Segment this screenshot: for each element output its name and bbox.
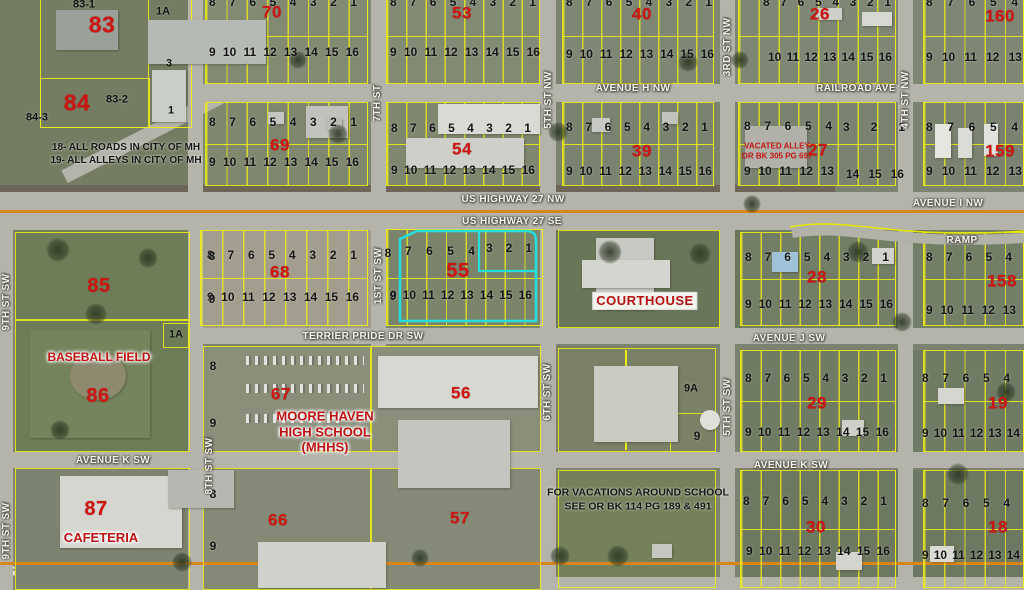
lot-number: 13 xyxy=(284,45,297,59)
lot-row: 87654321 xyxy=(743,494,887,508)
lot-number: 7 xyxy=(585,120,592,134)
lot-number: 16 xyxy=(522,163,535,177)
lot-number: 3 xyxy=(665,0,672,9)
lot-row: 910111213 xyxy=(744,164,834,178)
block-number-70: 70 xyxy=(262,4,282,21)
lot-number: 16 xyxy=(877,544,890,558)
lot-number: 12 xyxy=(262,290,275,304)
street-label: RAMP xyxy=(946,236,977,246)
lot-number: 13 xyxy=(1003,303,1016,317)
lot-number: 10 xyxy=(768,50,781,64)
lot-row: 910111213141516 xyxy=(745,297,893,311)
lot-number: 8 xyxy=(566,0,573,9)
lot-number: 2 xyxy=(861,494,868,508)
lot-number: 7 xyxy=(410,0,417,9)
lot-number: 15 xyxy=(868,167,881,181)
lot-number: 10 xyxy=(221,290,234,304)
lot-number: 8 xyxy=(566,120,573,134)
lot-number: 10 xyxy=(758,164,771,178)
lot-number: 3 xyxy=(842,371,849,385)
lot-number: 13 xyxy=(460,288,473,302)
block-number-85: 85 xyxy=(87,276,110,296)
street-label: 1ST ST SW xyxy=(374,248,384,304)
lot-number: 11 xyxy=(787,50,800,64)
block-number-55: 55 xyxy=(446,261,469,281)
block-number-57: 57 xyxy=(450,510,470,527)
lot-number: 11 xyxy=(779,544,792,558)
lot-row: 910111213141516 xyxy=(391,163,535,177)
lot-number: 8 xyxy=(926,0,933,9)
note-line: 19- ALL ALLEYS IN CITY OF MH xyxy=(50,154,201,167)
lot-number: 4 xyxy=(643,120,650,134)
lot-row: 910111213141516 xyxy=(390,288,532,302)
lot-row: 7654 xyxy=(405,244,475,258)
tree xyxy=(947,463,969,485)
block-number-158: 158 xyxy=(987,273,1017,290)
block-number-26: 26 xyxy=(810,6,830,23)
lot-number: 14 xyxy=(485,45,498,59)
tree xyxy=(50,420,70,440)
lot-number: 16 xyxy=(527,45,540,59)
lot-number: 8 xyxy=(743,494,750,508)
lot-number: 8 xyxy=(385,247,392,259)
lot-number: 3 xyxy=(843,120,850,134)
lot-number: 7 xyxy=(765,250,772,264)
lot-row: 87654 xyxy=(922,496,1010,510)
block-number-67: 67 xyxy=(271,386,291,403)
block-number-69: 69 xyxy=(270,137,290,154)
lot-number: 9 xyxy=(210,540,217,552)
tree xyxy=(892,312,912,332)
street-label: 7TH ST xyxy=(373,85,383,122)
lot-number: 13 xyxy=(1009,164,1022,178)
block-number-66: 66 xyxy=(268,512,288,529)
lot-number: 16 xyxy=(519,288,532,302)
lot-number: 5 xyxy=(448,121,455,135)
lot-row: 10111213141516 xyxy=(768,50,892,64)
block-number-53: 53 xyxy=(452,5,472,22)
lot-number: 14 xyxy=(480,288,493,302)
parcel-label-83-2: 83-2 xyxy=(106,95,128,106)
lot-number: 6 xyxy=(969,120,976,134)
street-label: 3RD ST NW xyxy=(723,18,733,77)
lot-number: 15 xyxy=(502,163,515,177)
lot-number: 12 xyxy=(970,548,983,562)
lot-number: 4 xyxy=(821,494,828,508)
lot-number: 7 xyxy=(942,371,949,385)
lot-number: 12 xyxy=(444,45,457,59)
lot-number: 4 xyxy=(467,121,474,135)
block-number-30: 30 xyxy=(806,519,826,536)
lot-number: 9 xyxy=(926,303,933,317)
lot-number: 15 xyxy=(325,45,338,59)
lot-row: 910111213141516 xyxy=(390,45,540,59)
tree xyxy=(743,195,761,213)
lot-number: 2 xyxy=(330,248,337,262)
lot-number: 9 xyxy=(745,297,752,311)
lot-number: 14 xyxy=(304,155,317,169)
lot-number: 6 xyxy=(249,0,256,9)
lot-number: 10 xyxy=(759,544,772,558)
block-number-18: 18 xyxy=(988,519,1008,536)
lot-number: 14 xyxy=(1007,548,1020,562)
lot-number: 13 xyxy=(816,425,829,439)
lot-row: 87654321 xyxy=(207,248,357,262)
lot-number: 2 xyxy=(505,121,512,135)
lot-number: 7 xyxy=(764,371,771,385)
lot-number: 7 xyxy=(764,119,771,133)
building xyxy=(398,420,510,488)
parcel-label-1A: 1A xyxy=(169,330,183,341)
lot-number: 7 xyxy=(586,0,593,9)
lot-number: 11 xyxy=(961,303,974,317)
courthouse-label: COURTHOUSE xyxy=(592,292,697,310)
lot-number: 8 xyxy=(209,0,216,9)
lot-number: 9 xyxy=(390,290,397,302)
lot-number: 16 xyxy=(346,155,359,169)
lot-row: 321 xyxy=(843,120,905,134)
lot-number: 13 xyxy=(817,544,830,558)
lot-row: 87654 xyxy=(926,250,1012,264)
lot-number: 2 xyxy=(867,0,874,9)
baseball-field-label: BASEBALL FIELD xyxy=(47,350,150,364)
street-label: AVENUE K SW xyxy=(754,461,828,471)
block-number-28: 28 xyxy=(807,269,827,286)
lot-number: 1 xyxy=(880,494,887,508)
lot-number: 2 xyxy=(863,250,870,264)
lot-number: 11 xyxy=(952,548,965,562)
note-line: VACATED ALLEY xyxy=(742,142,813,152)
lot-row: 910111213 xyxy=(926,303,1016,317)
lot-number: 13 xyxy=(284,155,297,169)
lot-number: 10 xyxy=(579,164,592,178)
parcel-label-83-1: 83-1 xyxy=(73,0,95,11)
lot-number: 2 xyxy=(509,0,516,9)
lot-number: 4 xyxy=(1003,371,1010,385)
lot-number: 14 xyxy=(846,167,859,181)
lot-number: 8 xyxy=(926,120,933,134)
lot-number: 6 xyxy=(249,115,256,129)
lot-number: 6 xyxy=(963,371,970,385)
lot-row: 87654321 xyxy=(209,115,357,129)
parcel-label-9A: 9A xyxy=(684,384,698,395)
lot-number: 12 xyxy=(799,297,812,311)
lot-number: 8 xyxy=(391,121,398,135)
lot-number: 16 xyxy=(880,297,893,311)
alley-line xyxy=(387,36,539,37)
street-label: AVENUE I NW xyxy=(913,199,983,209)
alley-line xyxy=(924,36,1023,37)
lot-number: 13 xyxy=(283,290,296,304)
lot-row: 910111213 xyxy=(926,164,1022,178)
lot-number: 9 xyxy=(694,430,701,442)
lot-number: 1 xyxy=(350,115,357,129)
lot-number: 9 xyxy=(566,47,573,61)
lot-number: 14 xyxy=(837,544,850,558)
lot-number: 6 xyxy=(784,250,791,264)
lot-number: 8 xyxy=(763,0,770,9)
lot-number: 16 xyxy=(891,167,904,181)
vacated-alley-note: VACATED ALLEYOR BK 305 PG 697 xyxy=(742,142,813,163)
parking-cars xyxy=(246,356,364,365)
lot-number: 15 xyxy=(860,50,873,64)
lot-number: 12 xyxy=(970,426,983,440)
lot-number: 13 xyxy=(640,47,653,61)
lot-number: 13 xyxy=(465,45,478,59)
lot-number: 9 xyxy=(922,548,929,562)
lot-number: 12 xyxy=(619,164,632,178)
lot-number: 6 xyxy=(963,496,970,510)
lot-number: 6 xyxy=(429,121,436,135)
lot-number: 7 xyxy=(405,244,412,258)
lot-number: 16 xyxy=(699,164,712,178)
lot-number: 2 xyxy=(861,371,868,385)
lot-number: 10 xyxy=(403,288,416,302)
lot-number: 11 xyxy=(243,155,256,169)
lot-number: 13 xyxy=(821,164,834,178)
lot-number: 12 xyxy=(263,45,276,59)
lot-number: 16 xyxy=(346,290,359,304)
lot-number: 16 xyxy=(346,45,359,59)
lot-number: 3 xyxy=(841,494,848,508)
lot-number: 5 xyxy=(983,496,990,510)
lot-number: 14 xyxy=(660,47,673,61)
tree xyxy=(411,549,429,567)
lot-number: 5 xyxy=(985,250,992,264)
street-label: 5TH ST NW xyxy=(544,71,554,129)
lot-number: 5 xyxy=(268,248,275,262)
block-number-160: 160 xyxy=(985,8,1015,25)
lot-number: 6 xyxy=(782,494,789,508)
lot-number: 8 xyxy=(745,250,752,264)
lot-number: 11 xyxy=(778,425,791,439)
lot-number: 15 xyxy=(679,164,692,178)
lot-number: 14 xyxy=(839,297,852,311)
lot-number: 12 xyxy=(620,47,633,61)
block-number-68: 68 xyxy=(270,264,290,281)
street-label: AVENUE H NW xyxy=(596,84,671,94)
lot-number: 5 xyxy=(983,371,990,385)
lot-number: 12 xyxy=(804,50,817,64)
tree xyxy=(731,51,749,69)
lot-row: 87654321 xyxy=(209,0,357,9)
lot-row: 910111213141516 xyxy=(566,47,714,61)
lot-number: 12 xyxy=(986,50,999,64)
lot-number: 4 xyxy=(468,244,475,258)
lot-number: 13 xyxy=(1009,50,1022,64)
lot-number: 2 xyxy=(682,120,689,134)
lot-number: 4 xyxy=(1005,250,1012,264)
lot-row: 91011121314 xyxy=(922,426,1020,440)
tree xyxy=(689,243,711,265)
lot-number: 12 xyxy=(800,164,813,178)
lot-number: 8 xyxy=(922,496,929,510)
lot-number: 13 xyxy=(988,548,1001,562)
lot-number: 12 xyxy=(441,288,454,302)
lot-number: 7 xyxy=(947,0,954,9)
lot-number: 15 xyxy=(325,290,338,304)
lot-row: 87654 xyxy=(926,120,1018,134)
lot-number: 11 xyxy=(424,45,437,59)
tree xyxy=(172,552,192,572)
lot-number: 8 xyxy=(390,0,397,9)
lot-number: 11 xyxy=(599,164,612,178)
lot-number: 9 xyxy=(744,164,751,178)
parcel-block-84-inner xyxy=(40,78,150,128)
block-number-29: 29 xyxy=(807,395,827,412)
lot-number: 2 xyxy=(685,0,692,9)
block-number-87: 87 xyxy=(84,499,107,519)
lot-number: 6 xyxy=(248,248,255,262)
block-number-19: 19 xyxy=(988,395,1008,412)
block-number-84: 84 xyxy=(64,92,91,115)
lot-number: 9 xyxy=(209,293,216,305)
lot-number: 10 xyxy=(404,163,417,177)
parcel-label-3: 3 xyxy=(166,59,172,70)
lot-number: 3 xyxy=(843,250,850,264)
tree xyxy=(598,240,622,264)
lot-number: 3 xyxy=(310,0,317,9)
lot-number: 10 xyxy=(934,426,947,440)
lot-number: 9 xyxy=(926,50,933,64)
lot-number: 3 xyxy=(486,241,493,255)
lot-number: 14 xyxy=(304,290,317,304)
lot-number: 9 xyxy=(209,155,216,169)
lot-number: 9 xyxy=(391,163,398,177)
lot-number: 11 xyxy=(243,45,256,59)
lot-number: 9 xyxy=(210,417,217,429)
alley-line xyxy=(563,36,713,37)
lot-number: 8 xyxy=(209,250,216,262)
lot-number: 5 xyxy=(804,250,811,264)
note-line: 18- ALL ROADS IN CITY OF MH xyxy=(50,141,201,154)
street-label: 9TH ST SW xyxy=(2,503,12,560)
map-canvas[interactable]: 27 SWFLAMLS 8765432191011121314151687654… xyxy=(0,0,1024,590)
lot-row: 910111213 xyxy=(926,50,1022,64)
lot-number: 6 xyxy=(426,244,433,258)
street-label: AVENUE K SW xyxy=(76,456,150,466)
lot-number: 1 xyxy=(884,0,891,9)
lot-row: 87654321 xyxy=(745,250,889,264)
block-number-83: 83 xyxy=(89,14,116,37)
lot-number: 13 xyxy=(639,164,652,178)
block-number-56: 56 xyxy=(451,385,471,402)
parking-cars xyxy=(246,384,364,393)
lot-number: 7 xyxy=(947,120,954,134)
lot-number: 8 xyxy=(209,115,216,129)
lot-row: 910111213141516 xyxy=(746,544,890,558)
lot-number: 9 xyxy=(745,425,752,439)
street-label: AVENUE J SW xyxy=(753,334,826,344)
vacations-note: FOR VACATIONS AROUND SCHOOLSEE OR BK 114… xyxy=(547,486,729,513)
lot-number: 7 xyxy=(229,115,236,129)
street-label: 9TH ST SW xyxy=(2,274,12,331)
parcel-label-1: 1 xyxy=(168,106,174,117)
street-label: TERRIER PRIDE DR SW xyxy=(303,332,424,342)
lot-number: 7 xyxy=(229,0,236,9)
lot-number: 10 xyxy=(759,297,772,311)
lot-row: 910111213141516 xyxy=(209,45,359,59)
block-number-40: 40 xyxy=(632,6,652,23)
lot-number: 12 xyxy=(982,303,995,317)
lot-row: 141516 xyxy=(846,167,904,181)
parcel-block-18 xyxy=(923,470,1024,588)
lot-number: 13 xyxy=(988,426,1001,440)
note-line: FOR VACATIONS AROUND SCHOOL xyxy=(547,486,729,500)
lot-number: 10 xyxy=(758,425,771,439)
lot-number: 8 xyxy=(744,119,751,133)
lot-number: 1 xyxy=(701,120,708,134)
lot-number: 11 xyxy=(242,290,255,304)
lot-number: 16 xyxy=(876,425,889,439)
lot-number: 11 xyxy=(964,164,977,178)
alley-line xyxy=(924,529,1023,530)
lot-number: 11 xyxy=(952,426,965,440)
lot-number: 9 xyxy=(390,45,397,59)
lot-number: 6 xyxy=(798,0,805,9)
parcel-label-1A: 1A xyxy=(156,7,170,18)
lot-number: 3 xyxy=(850,0,857,9)
lot-number: 8 xyxy=(926,250,933,264)
lot-number: 1 xyxy=(529,0,536,9)
note-line: OR BK 305 PG 697 xyxy=(742,152,813,162)
building xyxy=(582,260,670,288)
roads-alleys-note: 18- ALL ROADS IN CITY OF MH19- ALL ALLEY… xyxy=(50,141,201,167)
lot-number: 8 xyxy=(922,371,929,385)
lot-number: 10 xyxy=(580,47,593,61)
alley-line xyxy=(739,36,895,37)
lot-number: 4 xyxy=(1011,120,1018,134)
lot-number: 12 xyxy=(798,544,811,558)
tree xyxy=(550,546,570,566)
building xyxy=(862,12,892,26)
lot-number: 4 xyxy=(823,250,830,264)
lot-row: 910111213141516 xyxy=(207,290,359,304)
lot-number: 14 xyxy=(1007,426,1020,440)
lot-number: 10 xyxy=(223,155,236,169)
lot-number: 4 xyxy=(832,0,839,9)
lot-number: 4 xyxy=(290,115,297,129)
lot-row: 910111213141516 xyxy=(566,164,712,178)
lot-row: 321 xyxy=(486,241,532,255)
lot-number: 14 xyxy=(836,425,849,439)
landmark-line: HIGH SCHOOL xyxy=(276,424,373,440)
lot-number: 9 xyxy=(926,164,933,178)
road-railroad xyxy=(0,185,835,192)
tree xyxy=(138,248,158,268)
block-number-39: 39 xyxy=(632,143,652,160)
lot-number: 2 xyxy=(330,115,337,129)
landmark-line: MOORE HAVEN xyxy=(276,409,373,425)
street-label: US HIGHWAY 27 NW xyxy=(461,195,564,205)
lot-row: 910111213141516 xyxy=(745,425,889,439)
lot-number: 7 xyxy=(946,250,953,264)
lot-number: 6 xyxy=(785,119,792,133)
road-avenue-k xyxy=(0,452,1024,468)
lot-number: 15 xyxy=(680,47,693,61)
lot-row: 91011121314 xyxy=(922,548,1020,562)
lot-number: 7 xyxy=(227,248,234,262)
lot-number: 9 xyxy=(566,164,573,178)
lot-number: 6 xyxy=(969,0,976,9)
lot-row: 87654 xyxy=(744,119,832,133)
block-number-159: 159 xyxy=(985,143,1015,160)
lot-number: 15 xyxy=(499,288,512,302)
lot-row: 87654 xyxy=(922,371,1010,385)
lot-number: 12 xyxy=(797,425,810,439)
building xyxy=(652,544,672,558)
lot-number: 5 xyxy=(447,244,454,258)
